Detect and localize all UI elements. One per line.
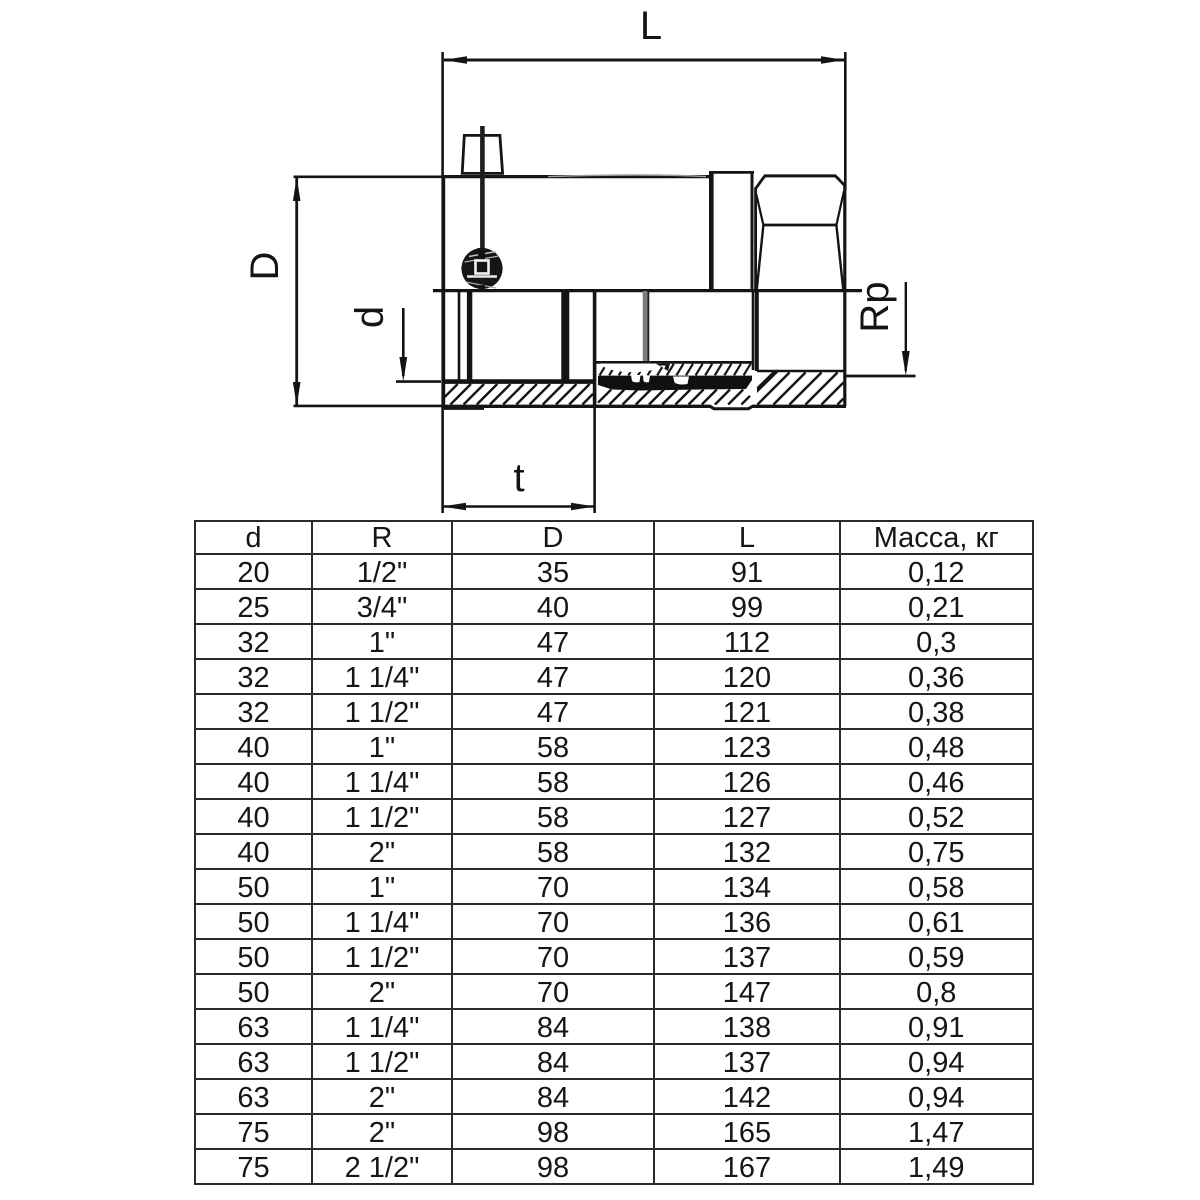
svg-text:d: d bbox=[348, 306, 392, 328]
svg-text:L: L bbox=[640, 4, 662, 48]
svg-text:D: D bbox=[243, 252, 287, 281]
svg-text:t: t bbox=[513, 456, 524, 500]
